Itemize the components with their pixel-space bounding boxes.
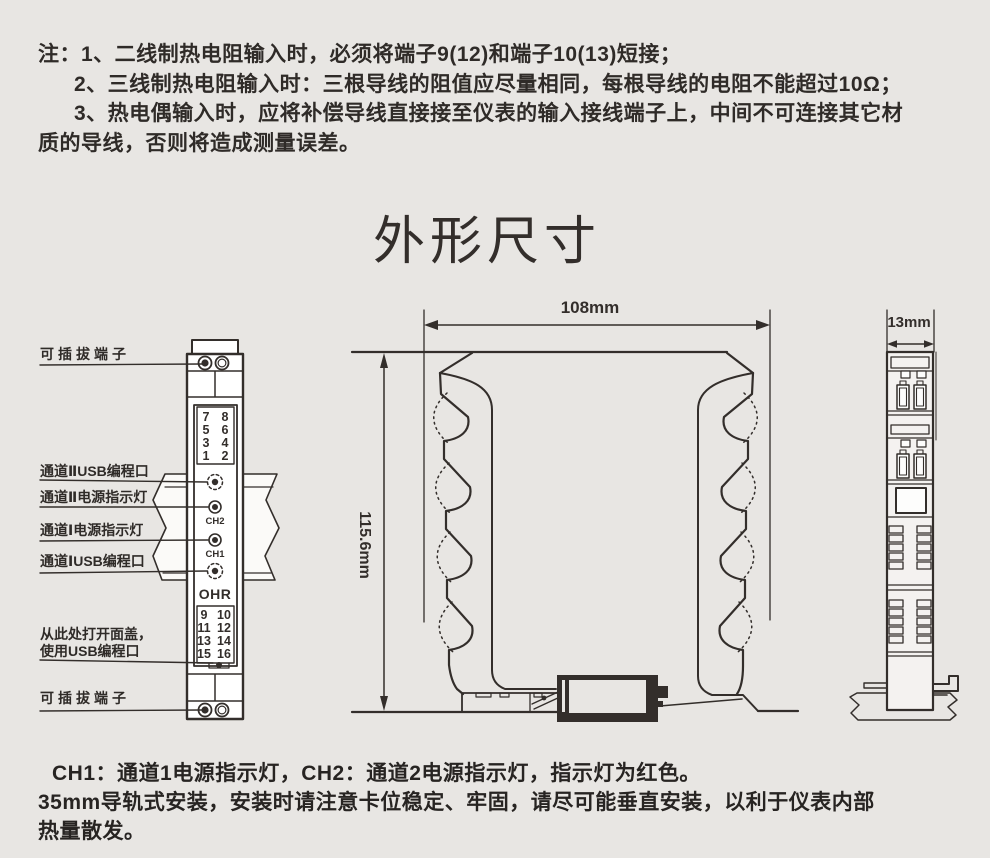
hidden-profile-dots [434, 393, 758, 652]
callout-terminal-top: 可插拔端子 [40, 344, 130, 364]
terminal-number: 12 [217, 621, 231, 635]
profile-view-drawing [352, 310, 798, 722]
terminal-number: 1 [203, 449, 210, 463]
cover-latch-dot [216, 662, 222, 668]
callout-open-cover-line2: 使用USB编程口 [40, 641, 140, 661]
led-label-ch2: CH2 [205, 516, 224, 527]
terminal-number: 13 [197, 634, 211, 648]
terminal-number: 10 [217, 608, 231, 622]
footer-line-1: CH1：通道1电源指示灯，CH2：通道2电源指示灯，指示灯为红色。 [52, 757, 701, 787]
din-rail-right-band [243, 474, 279, 580]
terminal-number: 4 [222, 436, 229, 450]
callout-ch1-usb: 通道ⅠUSB编程口 [40, 551, 145, 571]
terminal-number: 6 [222, 423, 229, 437]
terminal-number: 3 [203, 436, 210, 450]
callout-terminal-bottom: 可插拔端子 [40, 688, 130, 708]
dim-width-label: 108mm [561, 298, 620, 317]
terminal-number: 14 [217, 634, 231, 648]
terminal-number: 2 [222, 449, 229, 463]
profile-left-edge [440, 373, 472, 694]
side-view-drawing [850, 310, 958, 720]
dim-height-label: 115.6mm [355, 511, 373, 579]
callout-ch2-led: 通道Ⅱ电源指示灯 [40, 487, 147, 507]
din-clamp [557, 675, 668, 722]
callout-ch1-led: 通道Ⅰ电源指示灯 [40, 520, 143, 540]
usb-hatch [896, 488, 926, 513]
release-clip [933, 676, 958, 691]
callout-ch2-usb: 通道ⅡUSB编程口 [40, 461, 149, 481]
module-top-cap [192, 340, 238, 354]
terminal-number: 16 [217, 647, 231, 661]
footer-line-2: 35mm导轨式安装，安装时请注意卡位稳定、牢固，请尽可能垂直安装，以利于仪表内部 [38, 786, 875, 816]
brand-logo: OHR [199, 586, 232, 602]
dim-height [380, 353, 388, 711]
dim-width [424, 310, 770, 622]
footer-line-3: 热量散发。 [38, 815, 146, 845]
terminal-number: 9 [201, 608, 208, 622]
terminal-number: 15 [197, 647, 211, 661]
profile-right-edge [720, 373, 753, 694]
manual-page: 注：1、二线制热电阻输入时，必须将端子9(12)和端子10(13)短接； 2、三… [0, 0, 990, 858]
terminal-number: 11 [197, 621, 210, 635]
slide-clip [462, 693, 560, 712]
din-rail-left-band [153, 474, 187, 580]
led-label-ch1: CH1 [205, 549, 225, 560]
terminal-number: 5 [203, 423, 210, 437]
terminal-number: 7 [203, 410, 210, 424]
dim-depth-label: 13mm [887, 314, 930, 331]
terminal-number: 8 [222, 410, 229, 424]
dimension-drawing: 7 8 5 6 3 4 1 2 CH2 CH1 OHR 9 10 11 12 1… [0, 0, 990, 858]
